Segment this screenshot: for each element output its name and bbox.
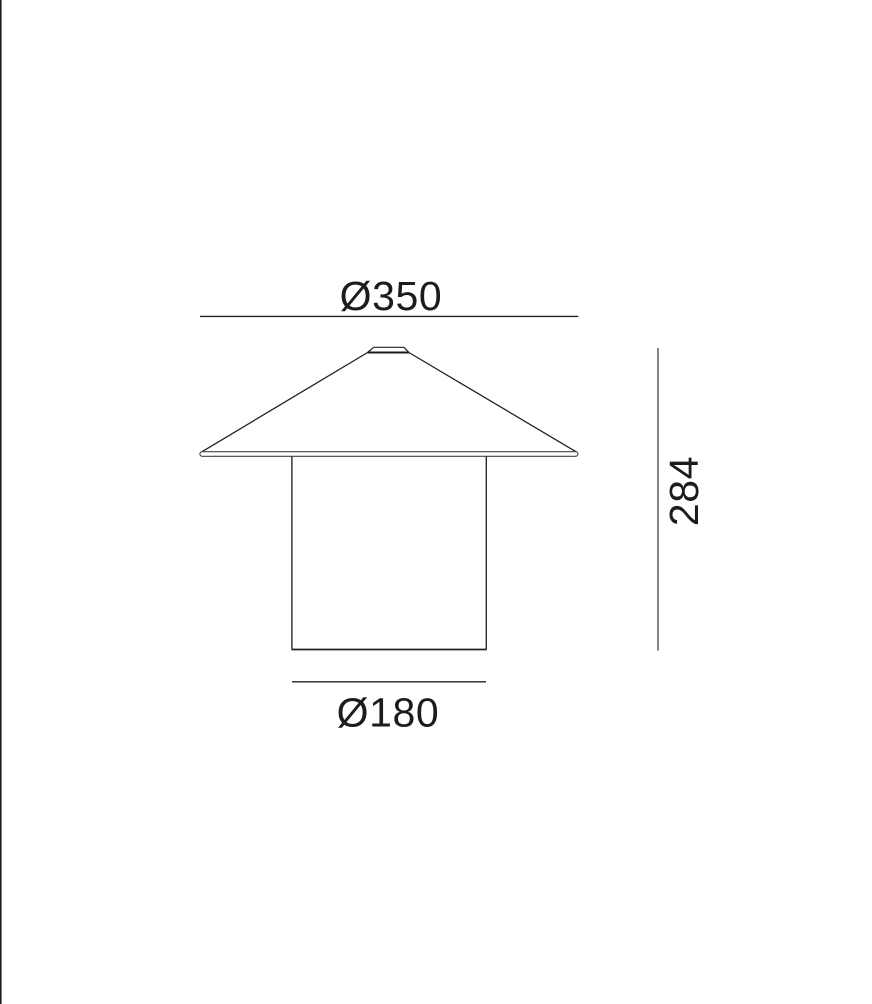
svg-text:Ø180: Ø180 <box>337 690 440 736</box>
svg-text:Ø350: Ø350 <box>340 273 443 319</box>
svg-text:284: 284 <box>661 456 707 526</box>
